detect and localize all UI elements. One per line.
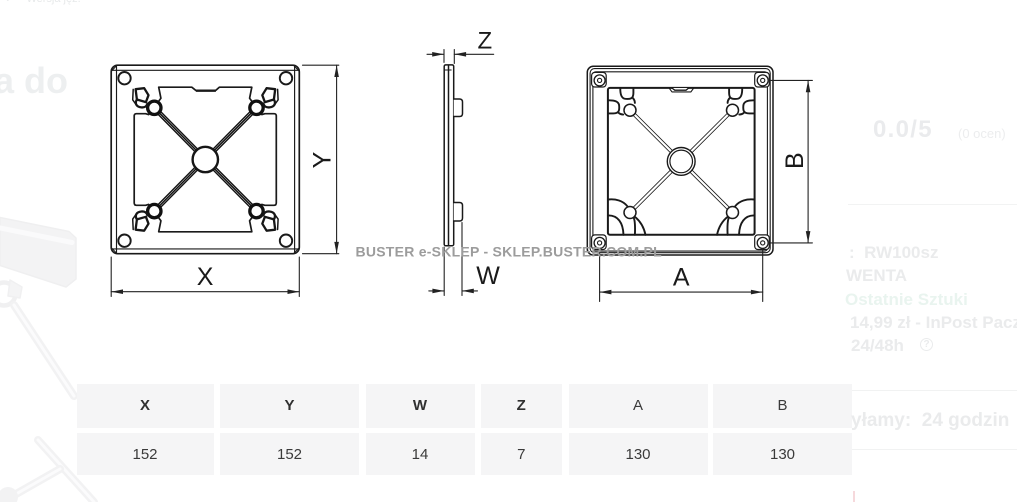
svg-text:Y: Y: [309, 151, 337, 168]
svg-text:A: A: [673, 264, 690, 292]
svg-text:W: W: [476, 262, 500, 290]
svg-text:X: X: [197, 263, 214, 291]
svg-text:BUSTER e-SKLEP - SKLEP.BUSTER.: BUSTER e-SKLEP - SKLEP.BUSTER.COM.PL: [356, 244, 663, 260]
svg-text:B: B: [781, 152, 809, 169]
svg-text:Z: Z: [477, 28, 492, 55]
